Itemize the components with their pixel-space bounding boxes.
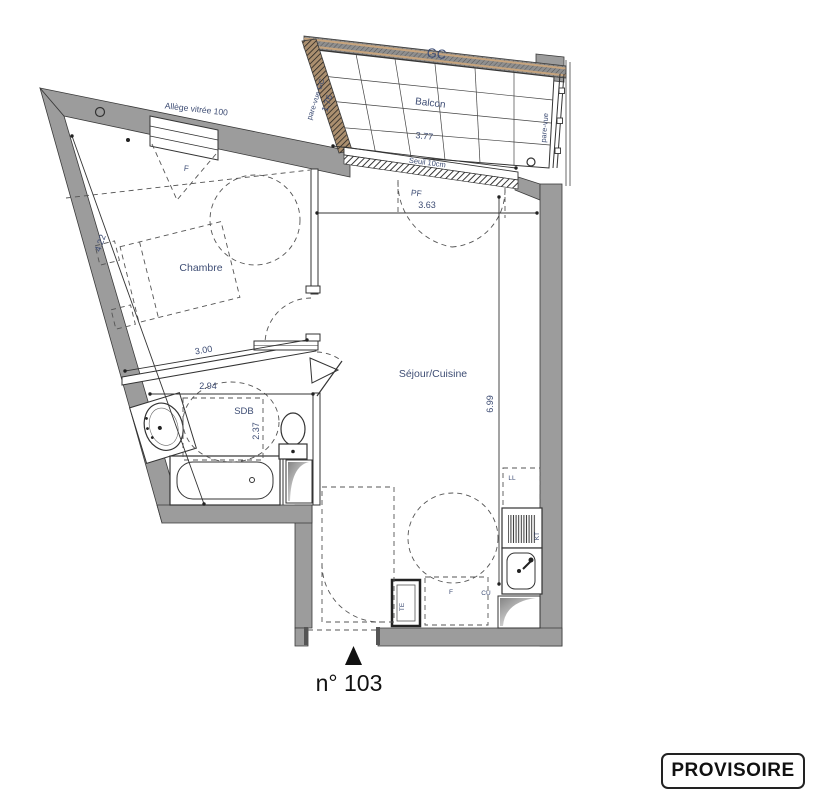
wall-entry-left [295,505,312,628]
entry-jamb-right [376,627,380,645]
sink-drain [517,569,521,573]
entry-door-swing [322,564,380,622]
electrical-panel [392,580,420,626]
room-label-sdb: SDB [234,406,254,417]
entry-jamb-left [304,627,308,645]
dim-balcon-width: 3.77 [415,130,434,142]
sdb-door-swing [317,352,342,361]
room-label-chambre: Chambre [179,262,222,274]
room-label-sejour: Séjour/Cuisine [399,368,467,380]
floor-plan-page: GC Balcon 3.77 Seuil 10cm pare-vue GC 1.… [0,0,840,800]
kitchen-label: CU [481,590,491,597]
floor-plan: GC Balcon 3.77 Seuil 10cm pare-vue GC 1.… [0,0,840,800]
wall-pf-right [515,176,540,200]
entry-closet-zone [322,487,394,622]
bay-label: PF [410,187,422,198]
entrance-arrow-icon [345,646,362,665]
bathtub [170,456,283,505]
wall-chambre-east [311,169,318,294]
dashed-ceiling-line [66,170,310,198]
dim-chambre-width: 3.00 [194,344,213,357]
dim-sejour-length: 6.99 [485,395,495,413]
window-label: F [183,164,189,174]
washing-machine-label: LL [508,475,516,482]
wall-right [540,184,562,646]
chambre-door-swing [265,298,311,344]
fridge-label: F [449,589,453,596]
wall-bottom [378,628,562,646]
door-jamb [306,286,320,293]
wall-sdb-bottom [157,505,312,523]
dim-sdb-width: 2.94 [199,381,217,391]
cooktop-hatch [508,515,536,543]
provisional-stamp: PROVISOIRE [661,753,805,789]
washing-machine-box [503,468,540,508]
turning-circle-sejour [408,493,498,583]
electrical-panel-label: TE [399,602,406,611]
cooktop-label: KT [534,532,541,540]
dim-sejour-width: 3.63 [418,200,436,210]
kitchen-units [425,468,542,628]
sliding-door-direction-arrow [310,358,338,383]
pf-door-swing-left [398,182,452,247]
turning-circle-chambre [210,175,300,265]
bathroom-counter [286,460,312,503]
toilet [279,413,307,459]
dim-sdb-depth: 2.37 [251,422,261,440]
unit-number: n° 103 [316,670,383,696]
pf-door-swing-right [452,190,505,247]
fridge-box [425,577,488,625]
balcony-drain-marker [527,158,535,166]
wall-sdb-east [313,393,320,505]
beam-label: GC [426,45,447,62]
